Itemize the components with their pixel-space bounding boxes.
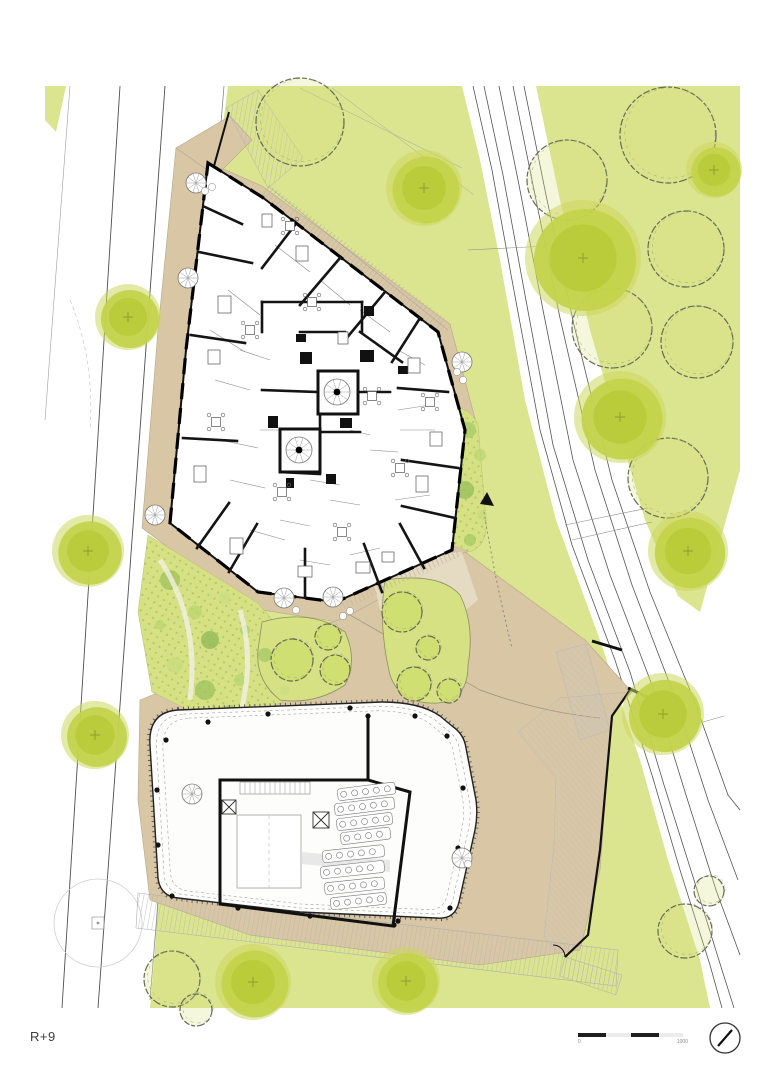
green-field-top-left-wedge: [45, 86, 66, 132]
tree-solid: [525, 200, 641, 316]
tree-sketch: [648, 211, 724, 287]
spiral-stair: [323, 587, 343, 607]
canopy-outline: [150, 702, 477, 918]
shrub: [280, 685, 290, 695]
spiral-stair: [178, 268, 198, 288]
tree-solid: [648, 511, 728, 591]
tree-solid: [574, 371, 666, 463]
shrub: [155, 620, 165, 630]
scale-max-label: 1000: [677, 1039, 688, 1045]
spiral-stair: [145, 505, 165, 525]
shrub: [167, 657, 183, 673]
shrub: [188, 605, 202, 619]
spiral-stair: [286, 437, 312, 463]
shrub: [201, 631, 219, 649]
scale-bar: 0 1000: [578, 1033, 688, 1045]
tree-sketch: [661, 306, 733, 378]
tree-solid: [215, 944, 291, 1020]
tree-solid: [61, 701, 129, 769]
tree-solid: [95, 284, 161, 350]
tree-sketch: [658, 904, 712, 958]
level-label: R+9: [30, 1029, 56, 1044]
tree-sketch: [256, 78, 344, 166]
shrub: [195, 680, 215, 700]
shrub: [464, 534, 476, 546]
shrub: [219, 592, 231, 604]
scale-zero-label: 0: [578, 1039, 581, 1045]
shrub: [477, 510, 487, 520]
scale-bar-segments: [578, 1033, 688, 1037]
spiral-stair: [274, 588, 294, 608]
tree-solid: [52, 515, 124, 587]
tree-solid: [686, 142, 742, 198]
north-arrow-icon: [705, 1018, 745, 1058]
stair-core: [318, 371, 358, 414]
lower-building: [150, 702, 477, 928]
site-plan-page: R+9 0 1000: [0, 0, 768, 1086]
tree-sketch: [694, 875, 725, 906]
tree-solid: [386, 150, 462, 226]
shrub: [474, 449, 486, 461]
tree-solid: [372, 947, 440, 1015]
stair-core: [280, 429, 320, 472]
spiral-stair: [324, 379, 350, 405]
shrub: [258, 648, 272, 662]
tree-solid: [622, 673, 704, 755]
site-plan-drawing: [0, 0, 768, 1086]
